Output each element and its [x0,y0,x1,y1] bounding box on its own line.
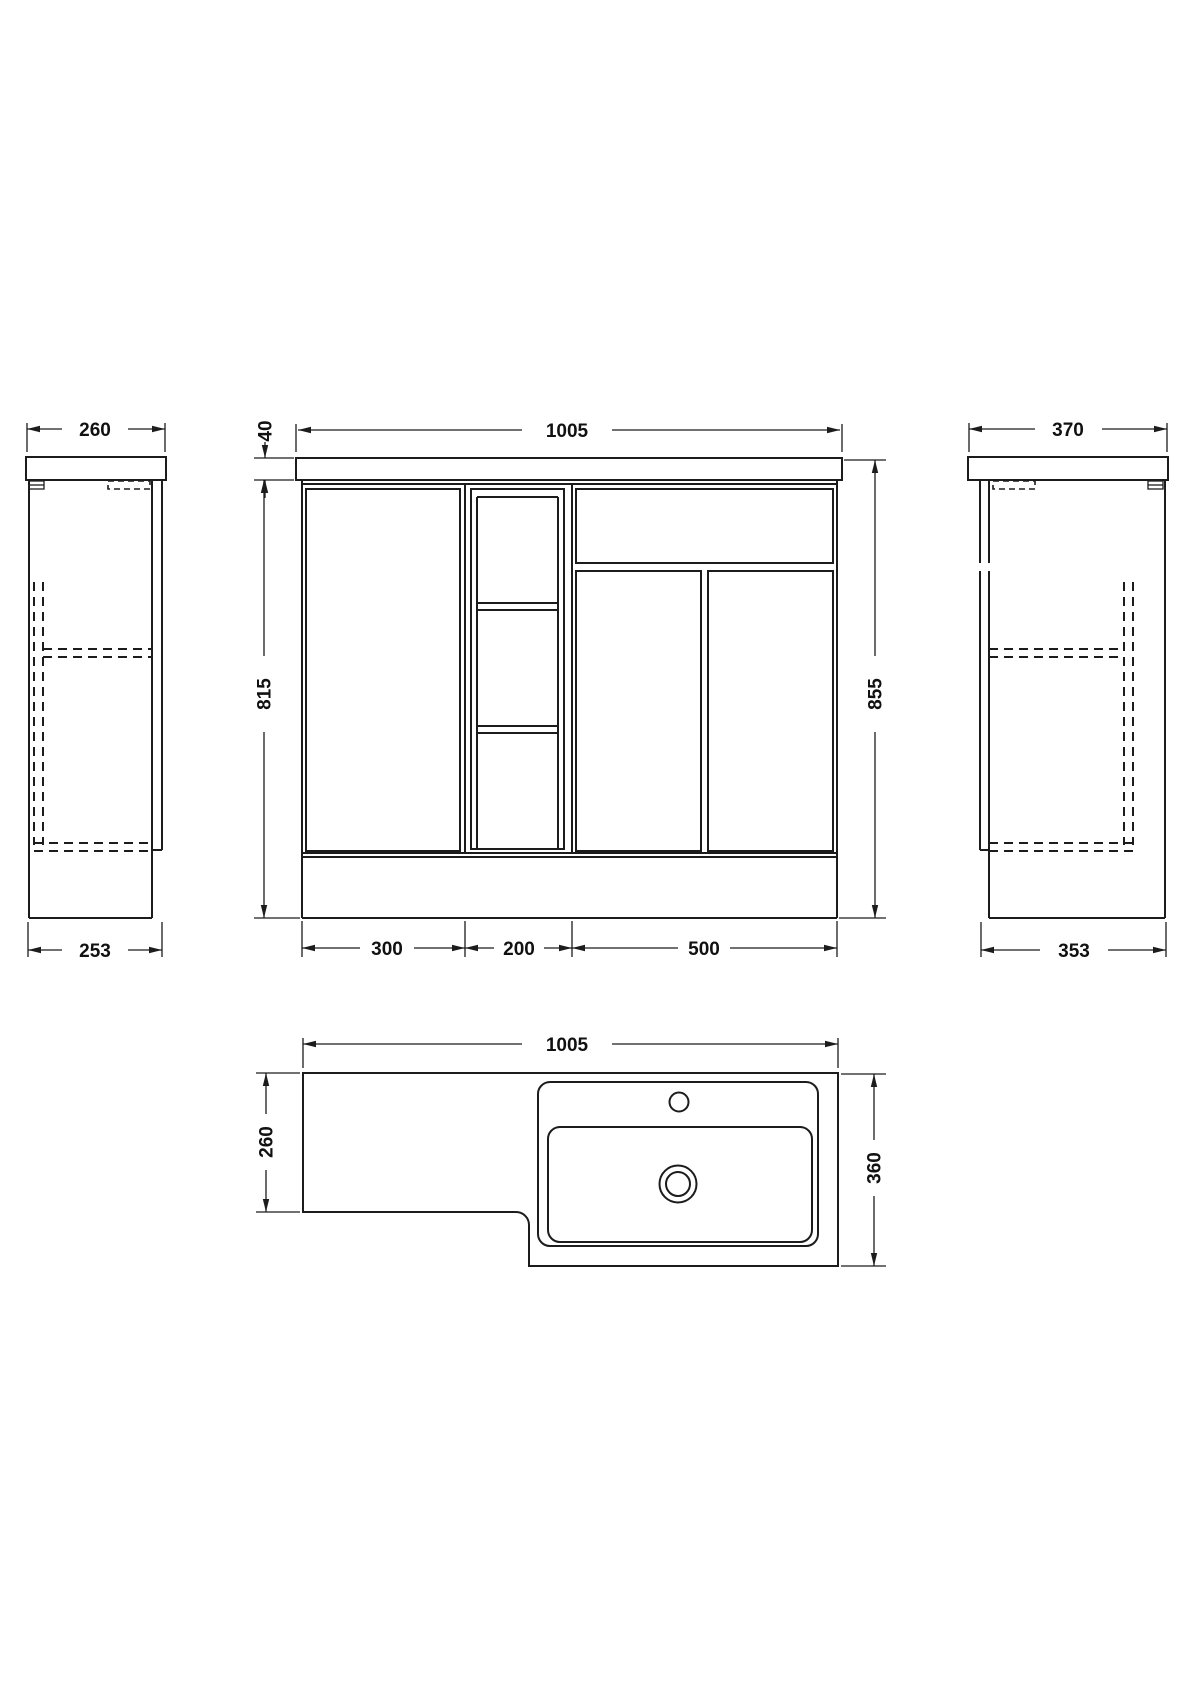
dim-label-left-bottom: 253 [79,941,111,962]
right-side-view: 370 353 [968,420,1168,962]
right-view-hidden-fixing [993,481,1035,489]
left-view-cabinet-outline [29,480,162,918]
right-view-countertop [968,457,1168,480]
dim-plan-right-depth: 360 [841,1074,886,1266]
front-view-right-door-a [576,571,701,851]
dim-front-sections: 300 200 500 [302,921,837,960]
dim-label-section-middle: 200 [503,939,535,960]
front-view-left-door [306,489,460,851]
dim-label-plan-right-depth: 360 [865,1152,886,1184]
dim-label-worktop-thickness: 40 [256,420,277,441]
front-view-shelf-upper [477,603,558,610]
dim-label-right-bottom: 353 [1058,941,1090,962]
plan-view-tap-hole [670,1093,689,1112]
dim-plan-left-depth: 260 [256,1073,300,1212]
right-view-cabinet-outline [980,480,1165,918]
front-view: 1005 40 815 855 300 200 [254,420,887,960]
plan-view-outline [303,1073,838,1266]
left-view-hidden-fixing [108,481,150,489]
dim-label-left-top: 260 [79,420,111,441]
dim-left-view-bottom-depth: 253 [28,922,162,962]
dim-front-overall-width: 1005 [296,421,842,452]
dim-label-front-width: 1005 [546,421,589,442]
dim-right-view-top-width: 370 [969,420,1167,452]
front-view-open-shelf-unit [471,489,564,849]
dim-right-view-bottom-depth: 353 [981,922,1166,962]
front-view-drawer-front [576,489,833,563]
plan-view-basin-outline [538,1082,818,1246]
dim-label-plan-left-depth: 260 [257,1126,278,1158]
dim-label-plan-width: 1005 [546,1035,589,1056]
left-view-hinge-detail [29,481,44,489]
right-view-hinge-detail [1148,481,1163,489]
plan-view-waste-drain [660,1166,697,1203]
dim-front-overall-height: 855 [839,460,887,918]
dim-plan-overall-width: 1005 [303,1035,838,1068]
right-view-hidden-lines [989,582,1133,851]
dim-label-section-right: 500 [688,939,720,960]
dim-front-worktop-thickness: 40 [254,420,294,498]
front-view-shelf-lower [477,726,558,733]
technical-drawing-page: 260 253 [0,0,1190,1684]
left-view-hidden-lines [34,582,152,851]
dim-left-view-top-width: 260 [27,420,165,452]
dim-label-cabinet-height: 815 [255,678,276,710]
front-view-right-door-b [708,571,833,851]
dim-label-right-top: 370 [1052,420,1084,441]
vanity-unit-dimension-drawing: 260 253 [0,0,1190,1684]
left-view-countertop [26,457,166,480]
front-view-carcass [302,480,837,918]
dim-label-overall-height: 855 [866,678,887,710]
left-side-view: 260 253 [26,420,166,962]
dim-front-cabinet-height: 815 [254,480,300,918]
dim-label-section-left: 300 [371,939,403,960]
plan-view: 1005 260 360 [256,1035,886,1266]
front-view-countertop [296,458,842,480]
plan-view-basin-bowl [548,1127,812,1242]
